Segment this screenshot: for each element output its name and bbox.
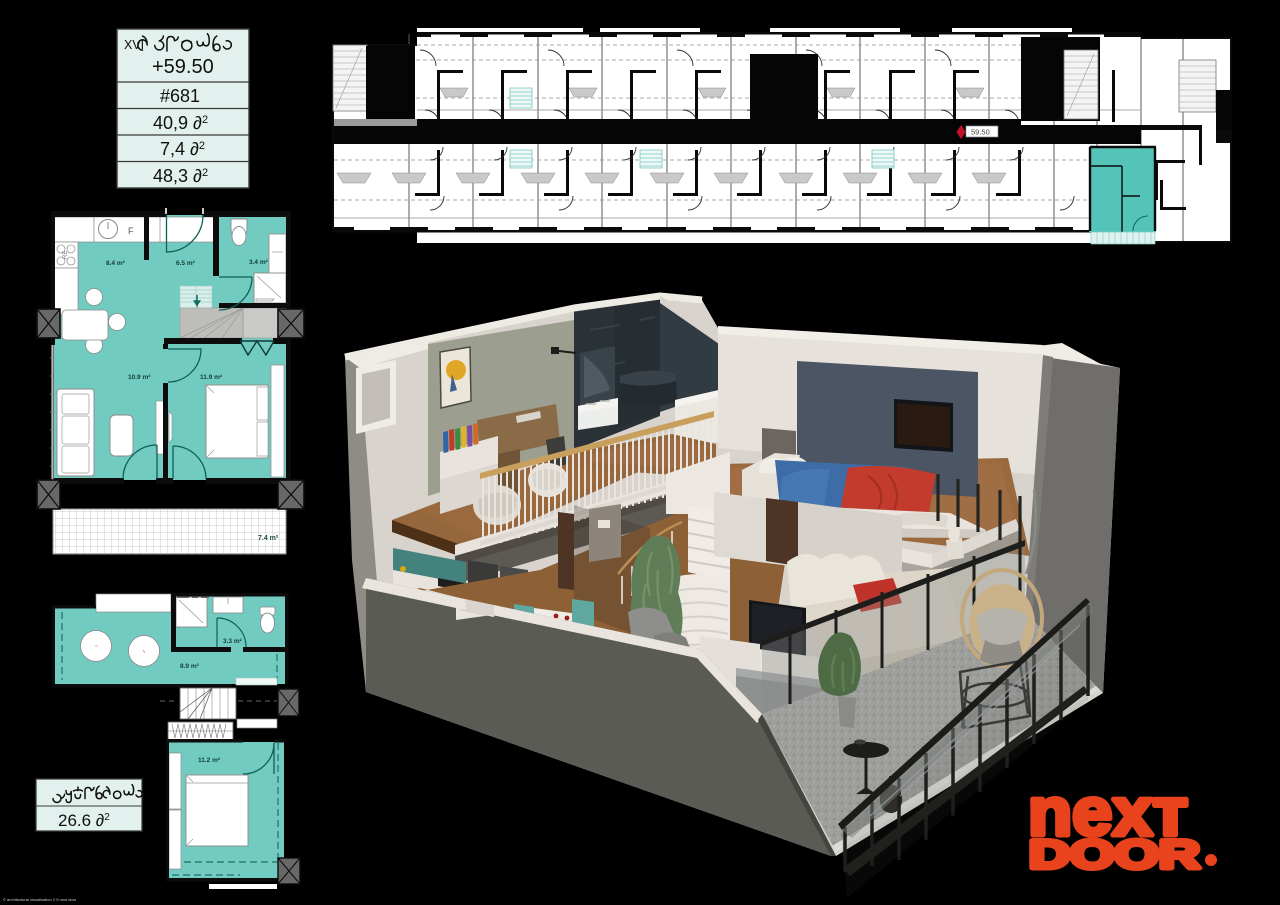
svg-text:11.9 m²: 11.9 m² [200, 374, 223, 381]
svg-text:48,3 ∂2: 48,3 ∂2 [153, 166, 208, 186]
svg-text:+59.50: +59.50 [152, 56, 214, 78]
svg-text:10.9 m²: 10.9 m² [128, 374, 151, 381]
svg-text:3.4 m²: 3.4 m² [249, 259, 269, 266]
svg-text:7.4 m²: 7.4 m² [258, 535, 279, 542]
svg-text:© architectural visualisation: © architectural visualisation 2.0 next d… [3, 897, 77, 902]
svg-text:RE: RE [63, 251, 69, 259]
svg-text:26.6 ∂2: 26.6 ∂2 [58, 811, 110, 830]
svg-text:DOOR: DOOR [1029, 833, 1200, 877]
svg-text:7,4 ∂2: 7,4 ∂2 [160, 139, 205, 159]
svg-text:8.4 m²: 8.4 m² [106, 260, 126, 267]
svg-text:8.9 m²: 8.9 m² [180, 663, 200, 670]
svg-text:6.5 m²: 6.5 m² [176, 260, 196, 267]
svg-text:11.2 m²: 11.2 m² [198, 757, 221, 764]
svg-text:#681: #681 [160, 86, 200, 106]
svg-text:59.50: 59.50 [971, 128, 990, 137]
svg-text:3.3 m²: 3.3 m² [223, 638, 243, 645]
svg-text:F: F [128, 226, 134, 236]
svg-text:40,9 ∂2: 40,9 ∂2 [153, 113, 208, 133]
